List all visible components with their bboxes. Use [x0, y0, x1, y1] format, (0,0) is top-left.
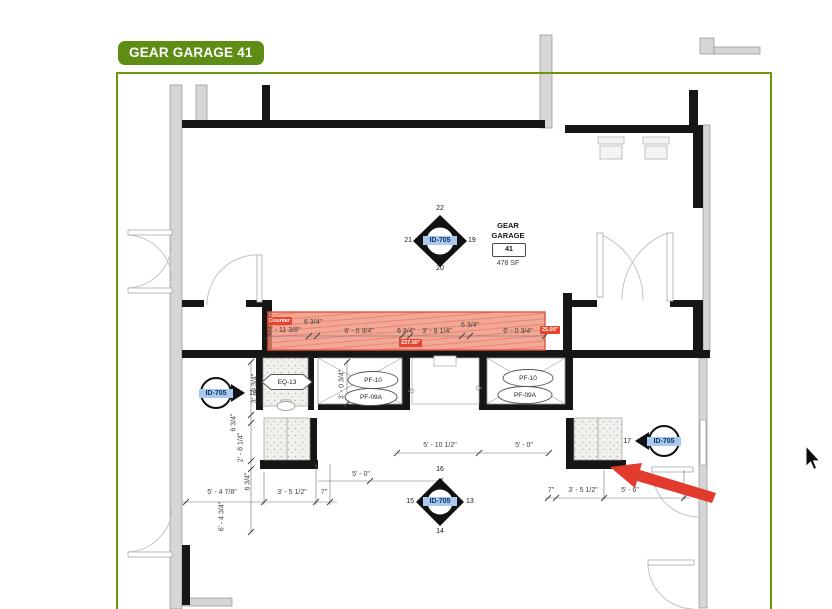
counter-dim: 6 3/4" — [455, 321, 485, 330]
keynote-number-20: 20 — [432, 264, 448, 273]
keynote-number-14: 14 — [432, 527, 448, 536]
dim-br-b: 3' - 5 1/2" — [556, 486, 610, 495]
dim-bl-b: 3' - 5 1/2" — [265, 488, 319, 497]
counter-dim: 2' - 11 3/8" — [252, 326, 316, 335]
keynote-number-19: 19 — [468, 236, 484, 245]
dim-mid-c: 5' - 0" — [336, 470, 386, 479]
sink-symbol — [277, 402, 295, 411]
dim-v-e: 6' - 4 3/4" — [218, 491, 227, 543]
dim-mid-a: 5' - 10 1/2" — [408, 441, 472, 450]
room-area: 478 SF — [478, 259, 538, 268]
plan-viewer-canvas: GEAR GARAGE 41 GEAR GARAGE 41 478 SF ID-… — [0, 0, 832, 609]
pf-tag-left-bottom: PF-09A — [348, 393, 394, 402]
pf-tag-left-top: PF-10 — [353, 376, 393, 385]
keynote-number-16: 16 — [432, 465, 448, 474]
keynote-number-17: 17 — [617, 437, 631, 446]
room-name-line2: GARAGE — [478, 231, 538, 240]
counter-dim: 6' - 0 3/4" — [336, 327, 382, 336]
keynote-number-13: 13 — [466, 497, 482, 506]
keynote-number-21: 21 — [396, 236, 412, 245]
mouse-cursor — [806, 446, 820, 469]
dim-v-f: 3' - 0 3/4" — [338, 359, 347, 411]
pf-tag-right-top: PF-10 — [508, 374, 548, 383]
dim-v-a: 3' - 9 3/4" — [251, 363, 260, 415]
counter-width-badge: 25.00" — [540, 326, 560, 334]
dim-mid-b: 5' - 0" — [499, 441, 549, 450]
counter-name-badge[interactable]: Counter — [267, 317, 292, 325]
keynote-id-right[interactable]: ID-705 — [647, 437, 681, 446]
floor-plan-drawing — [0, 0, 832, 609]
room-tag-label[interactable]: GEAR GARAGE 41 — [118, 41, 264, 65]
keynote-number-15: 15 — [398, 497, 414, 506]
keynote-id-left[interactable]: ID-705 — [199, 389, 233, 398]
counter-dim: 3' - 8 1/4" — [416, 327, 458, 336]
counter-dim: 6' - 0 3/4" — [495, 327, 541, 336]
keynote-number-22: 22 — [432, 204, 448, 213]
pf-tag-right-bottom: PF-09A — [502, 391, 548, 400]
counter-length-badge: 237.50" — [399, 339, 422, 347]
keynote-id-center[interactable]: ID-705 — [423, 236, 457, 245]
room-number-box: 41 — [492, 243, 526, 257]
eq-tag-label: EQ-13 — [267, 378, 307, 387]
wall-fixtures — [598, 137, 669, 159]
keynote-id-bottom[interactable]: ID-705 — [423, 497, 457, 506]
dim-bl-c: 7" — [316, 488, 332, 497]
room-name-line1: GEAR — [478, 221, 538, 230]
dim-v-d: 6 3/4" — [244, 467, 253, 497]
dim-v-c: 2' - 8 1/4" — [237, 423, 246, 473]
dim-br-c: 5' - 6" — [605, 486, 655, 495]
